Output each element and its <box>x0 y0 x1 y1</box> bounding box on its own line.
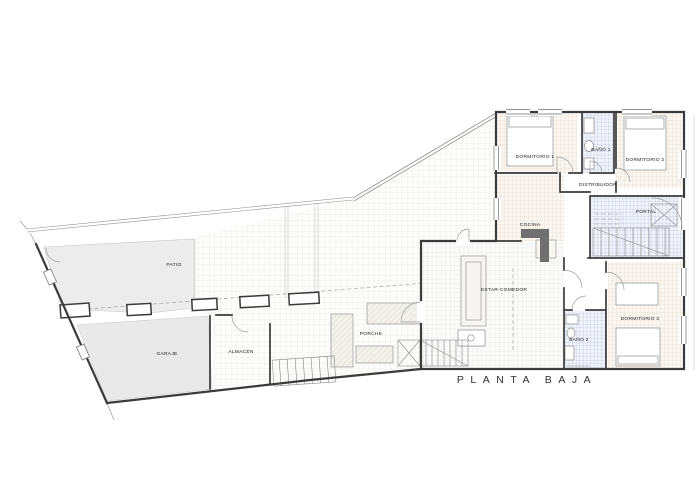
window-dorm1-a <box>506 107 530 116</box>
room-label-cocina: COCINA <box>520 222 541 228</box>
patio-floor <box>44 239 194 313</box>
room-label-bano-1: BAÑO 1 <box>591 146 610 153</box>
room-label-distribuidor: DISTRIBUIDOR <box>579 182 617 188</box>
room-label-dormitorio-3: DORMITORIO 3 <box>621 316 660 322</box>
window-dorm2-top <box>622 107 652 116</box>
room-label-garaje: GARAJE <box>156 351 178 357</box>
window-dorm2-right <box>679 150 688 178</box>
room-floor-portal <box>590 196 682 258</box>
window-cocina-b <box>492 198 501 220</box>
room-label-porche: PORCHE <box>360 331 383 337</box>
room-label-patio: PATIO <box>166 262 181 268</box>
window-dorm3-a <box>679 268 688 296</box>
garage-floor <box>77 316 212 401</box>
room-label-dormitorio-2: DORMITORIO 2 <box>626 157 665 163</box>
room-label-bano-2: BAÑO 2 <box>569 336 588 343</box>
room-label-almacen: ALMACÉN <box>228 348 254 355</box>
window-cocina-a <box>492 146 501 170</box>
portal-entry-opening <box>679 198 688 230</box>
window-dorm3-b <box>679 316 688 344</box>
room-label-dormitorio-1: DORMITORIO 1 <box>516 154 555 160</box>
porch-door-opening <box>417 301 425 323</box>
estar-north-door-opening <box>456 237 470 245</box>
window-dorm1-b <box>538 107 562 116</box>
room-label-estar-comedor: ESTAR-COMEDOR <box>481 287 528 293</box>
floor-plan-drawing: PATIO GARAJE ALMACÉN PORCHE ESTAR-COMEDO… <box>0 0 700 495</box>
floor-plan-page: PATIO GARAJE ALMACÉN PORCHE ESTAR-COMEDO… <box>0 0 700 495</box>
plan-title: PLANTA BAJA <box>457 374 597 386</box>
room-label-portal: PORTAL <box>636 209 657 215</box>
